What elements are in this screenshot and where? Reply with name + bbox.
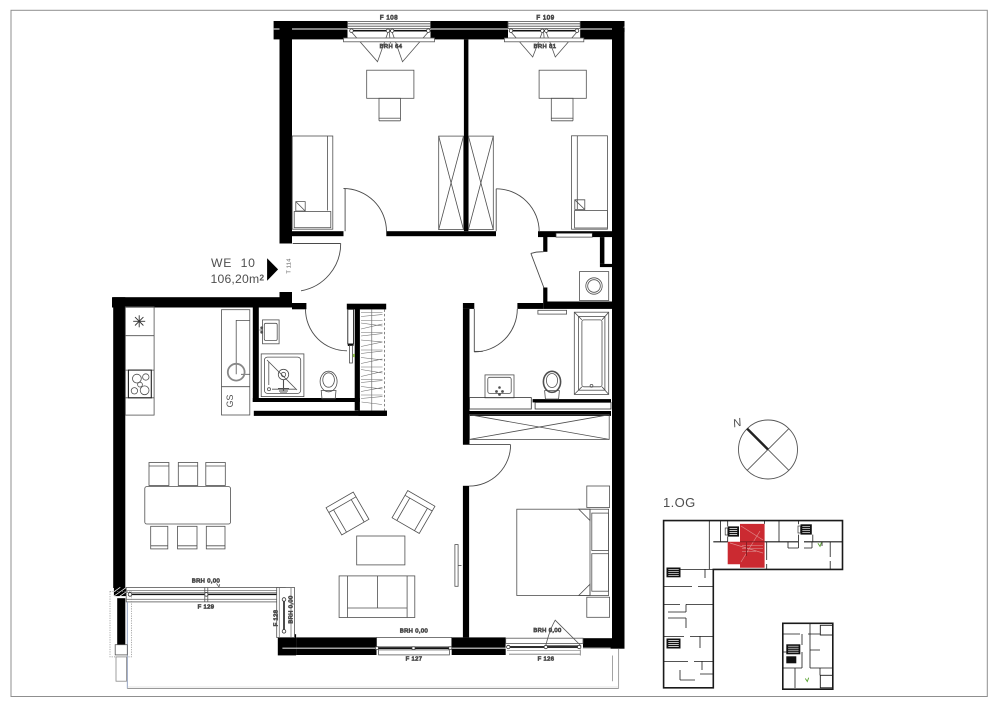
svg-text:F 127: F 127 [406,656,423,662]
svg-text:BRH 81: BRH 81 [534,44,557,50]
svg-text:T 114: T 114 [287,258,293,273]
svg-text:BRH 0,00: BRH 0,00 [192,579,220,585]
svg-text:WE 10: WE 10 [211,256,256,270]
svg-text:1.OG: 1.OG [663,495,696,510]
svg-text:F 108: F 108 [380,15,398,21]
svg-text:F 128: F 128 [274,610,280,627]
svg-text:BRH 0,00: BRH 0,00 [289,595,295,623]
svg-text:BRH 64: BRH 64 [380,44,403,50]
svg-text:BRH 0,00: BRH 0,00 [400,628,428,634]
svg-text:F 126: F 126 [538,657,555,663]
svg-text:GS: GS [225,395,235,408]
svg-text:N: N [732,417,744,431]
svg-text:106,20m2: 106,20m2 [211,272,265,286]
svg-text:F 109: F 109 [536,15,554,21]
svg-text:BRH 0,00: BRH 0,00 [533,628,561,634]
svg-text:F 129: F 129 [198,604,215,610]
